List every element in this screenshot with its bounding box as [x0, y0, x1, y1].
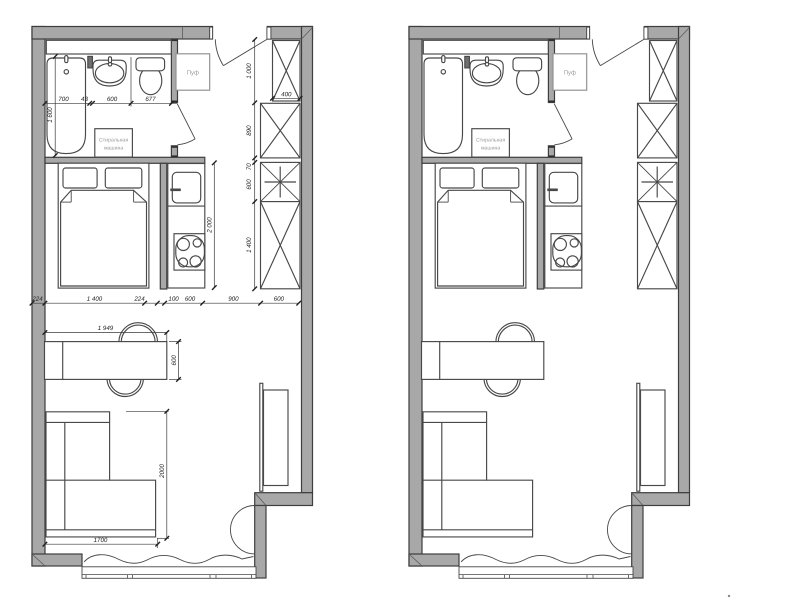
svg-text:224: 224 — [31, 296, 43, 303]
svg-text:600: 600 — [246, 179, 253, 190]
svg-text:400: 400 — [281, 91, 292, 98]
svg-text:2 000: 2 000 — [206, 217, 213, 234]
svg-text:600: 600 — [107, 96, 118, 103]
svg-text:70: 70 — [246, 163, 253, 170]
svg-text:2000: 2000 — [159, 464, 166, 479]
svg-text:600: 600 — [274, 296, 285, 303]
svg-text:600: 600 — [171, 355, 178, 366]
svg-text:677: 677 — [145, 96, 156, 103]
svg-text:600: 600 — [185, 296, 196, 303]
svg-text:700: 700 — [58, 96, 69, 103]
svg-text:224: 224 — [133, 296, 145, 303]
svg-text:1 000: 1 000 — [246, 63, 253, 79]
svg-text:1 600: 1 600 — [47, 107, 54, 123]
svg-text:43: 43 — [81, 96, 88, 103]
svg-text:900: 900 — [228, 296, 239, 303]
svg-text:1700: 1700 — [94, 537, 108, 544]
svg-text:890: 890 — [246, 125, 253, 136]
svg-text:100: 100 — [168, 296, 179, 303]
svg-text:1 400: 1 400 — [87, 296, 103, 303]
svg-text:1 949: 1 949 — [98, 325, 114, 332]
svg-text:1 400: 1 400 — [246, 237, 253, 253]
